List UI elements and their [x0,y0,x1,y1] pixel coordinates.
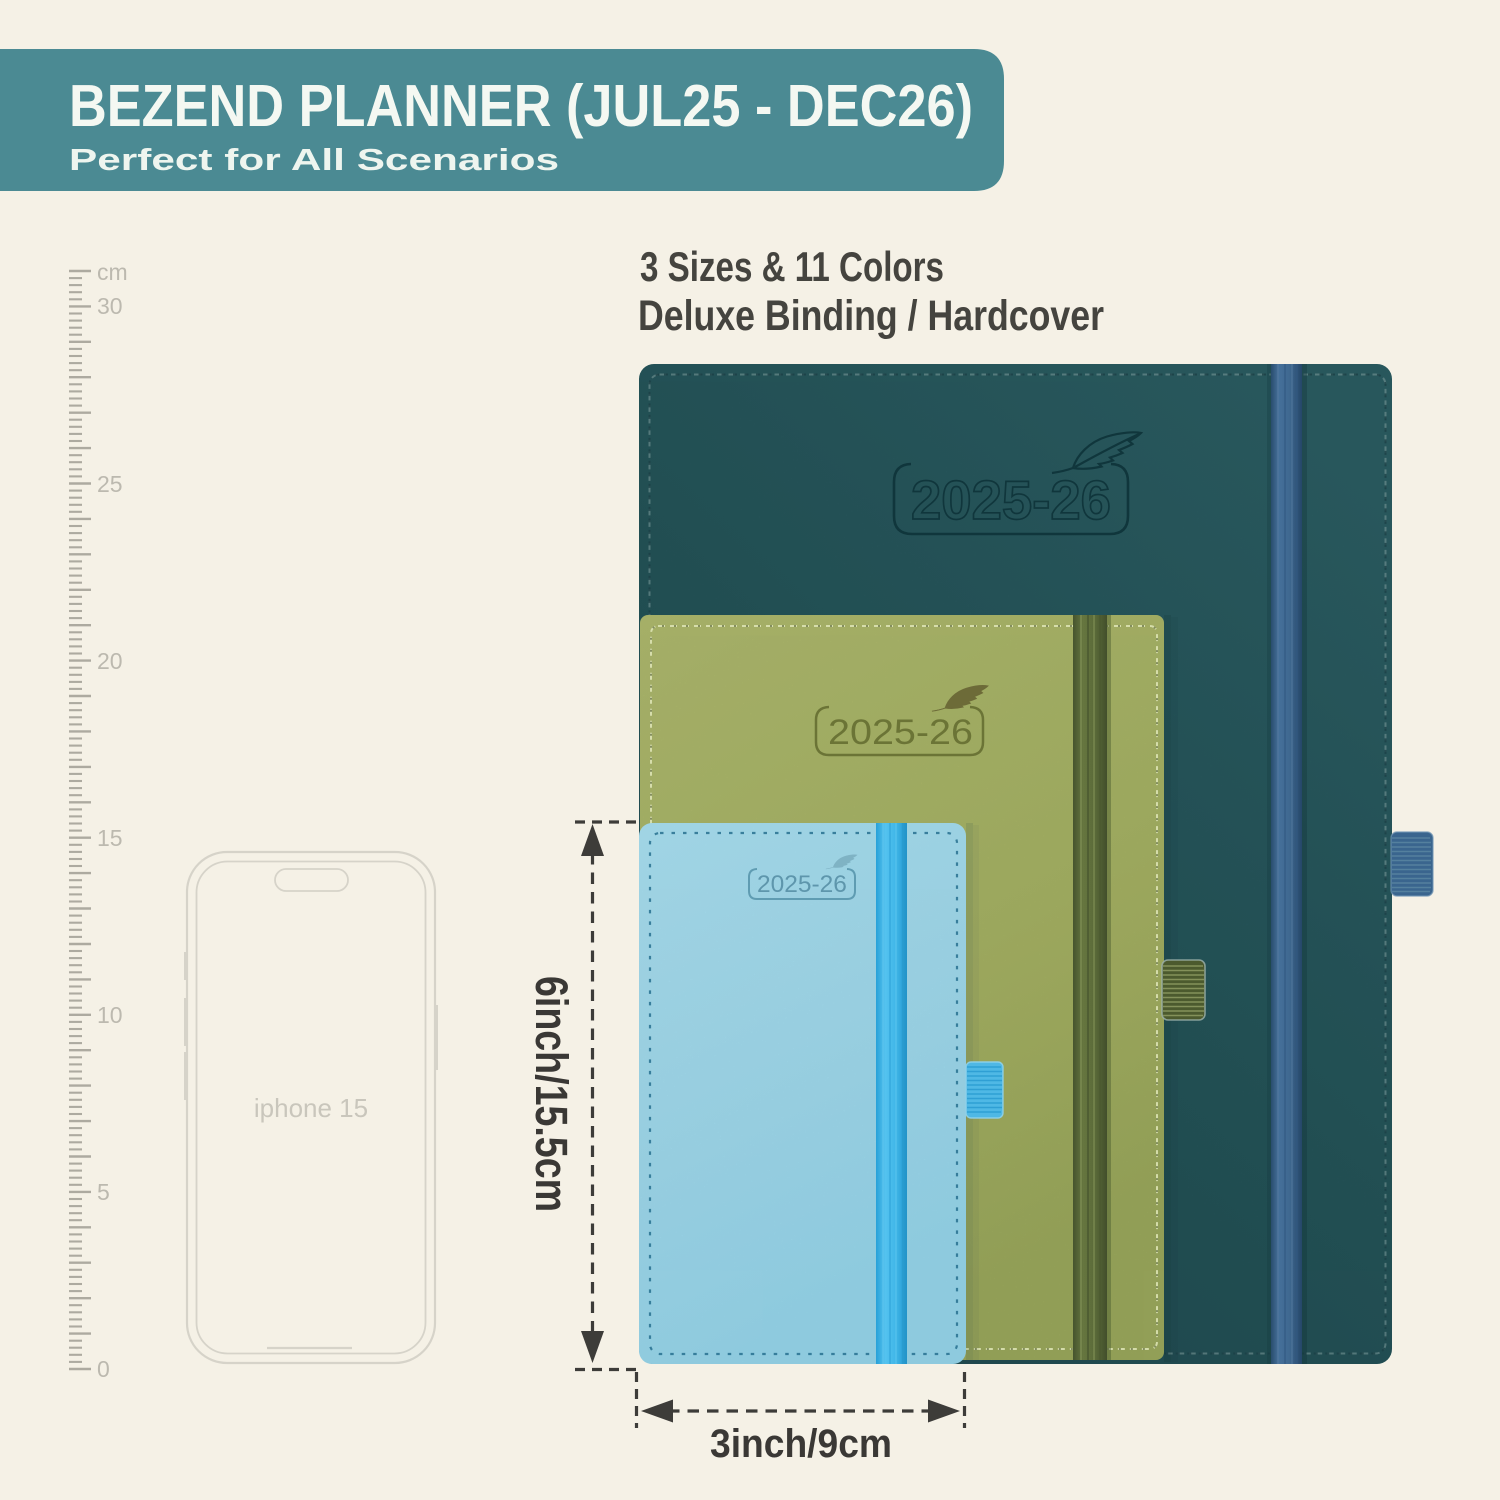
svg-text:5: 5 [97,1179,110,1205]
svg-text:25: 25 [97,471,123,497]
svg-text:Deluxe Binding / Hardcover: Deluxe Binding / Hardcover [638,292,1104,340]
svg-text:Perfect for All Scenarios: Perfect for All Scenarios [69,142,559,177]
svg-text:10: 10 [97,1002,123,1028]
svg-text:iphone 15: iphone 15 [254,1093,368,1123]
svg-text:20: 20 [97,648,123,674]
svg-text:BEZEND PLANNER (JUL25 - DEC26): BEZEND PLANNER (JUL25 - DEC26) [69,73,973,139]
svg-text:6inch/15.5cm: 6inch/15.5cm [526,976,577,1212]
svg-text:15: 15 [97,825,123,851]
svg-text:0: 0 [97,1356,110,1382]
svg-text:cm: cm [97,259,128,285]
svg-text:2025-26: 2025-26 [911,469,1111,531]
svg-text:3 Sizes & 11 Colors: 3 Sizes & 11 Colors [640,243,944,290]
svg-text:2025-26: 2025-26 [757,871,847,898]
svg-text:2025-26: 2025-26 [828,713,973,752]
svg-text:30: 30 [97,293,123,319]
svg-text:3inch/9cm: 3inch/9cm [710,1422,892,1466]
